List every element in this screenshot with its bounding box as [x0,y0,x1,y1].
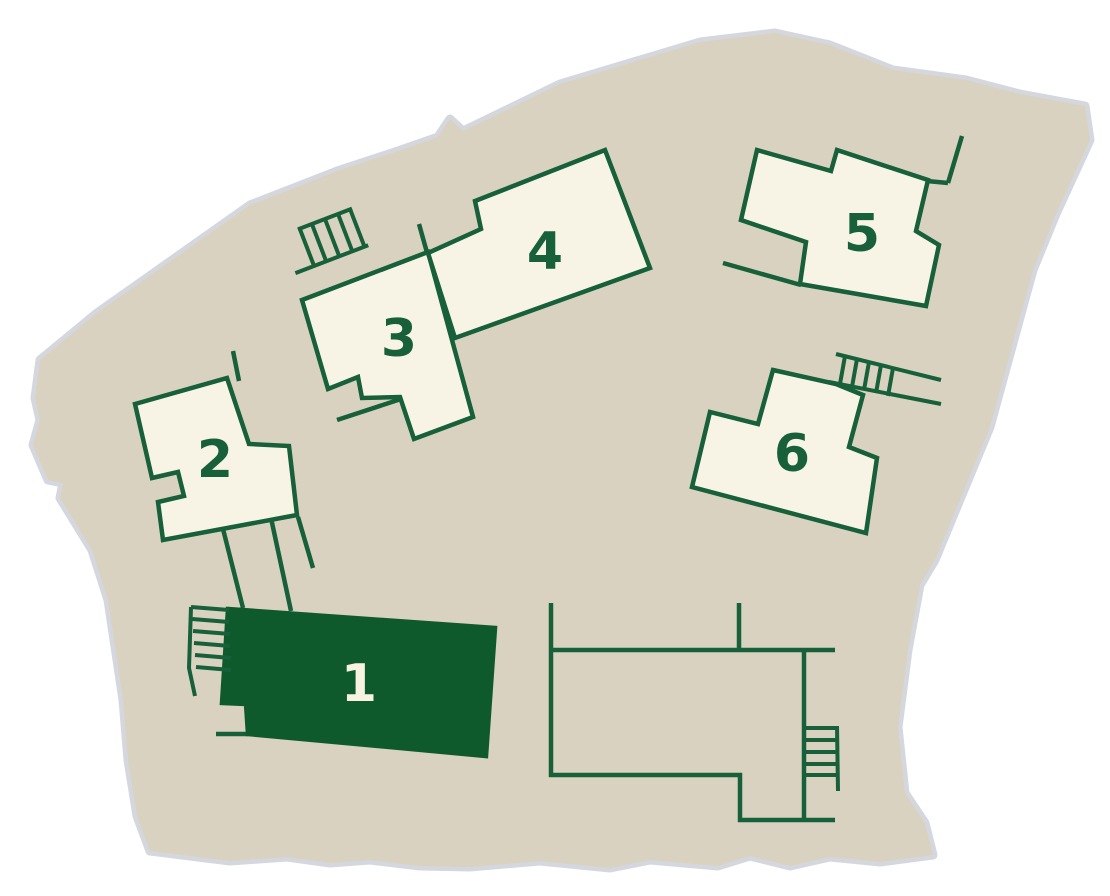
building-1[interactable]: 1 [222,609,495,756]
building-4-label: 4 [527,222,563,282]
site-plan-map: 2 3 4 5 6 1 [0,0,1110,896]
site-plan-canvas: 2 3 4 5 6 1 [0,0,1110,896]
boundary-line [927,181,948,183]
building-1-label: 1 [341,654,377,714]
building-5-label: 5 [844,204,880,264]
building-3-label: 3 [381,309,417,369]
building-2-label: 2 [197,430,233,490]
building-6-label: 6 [774,424,810,484]
